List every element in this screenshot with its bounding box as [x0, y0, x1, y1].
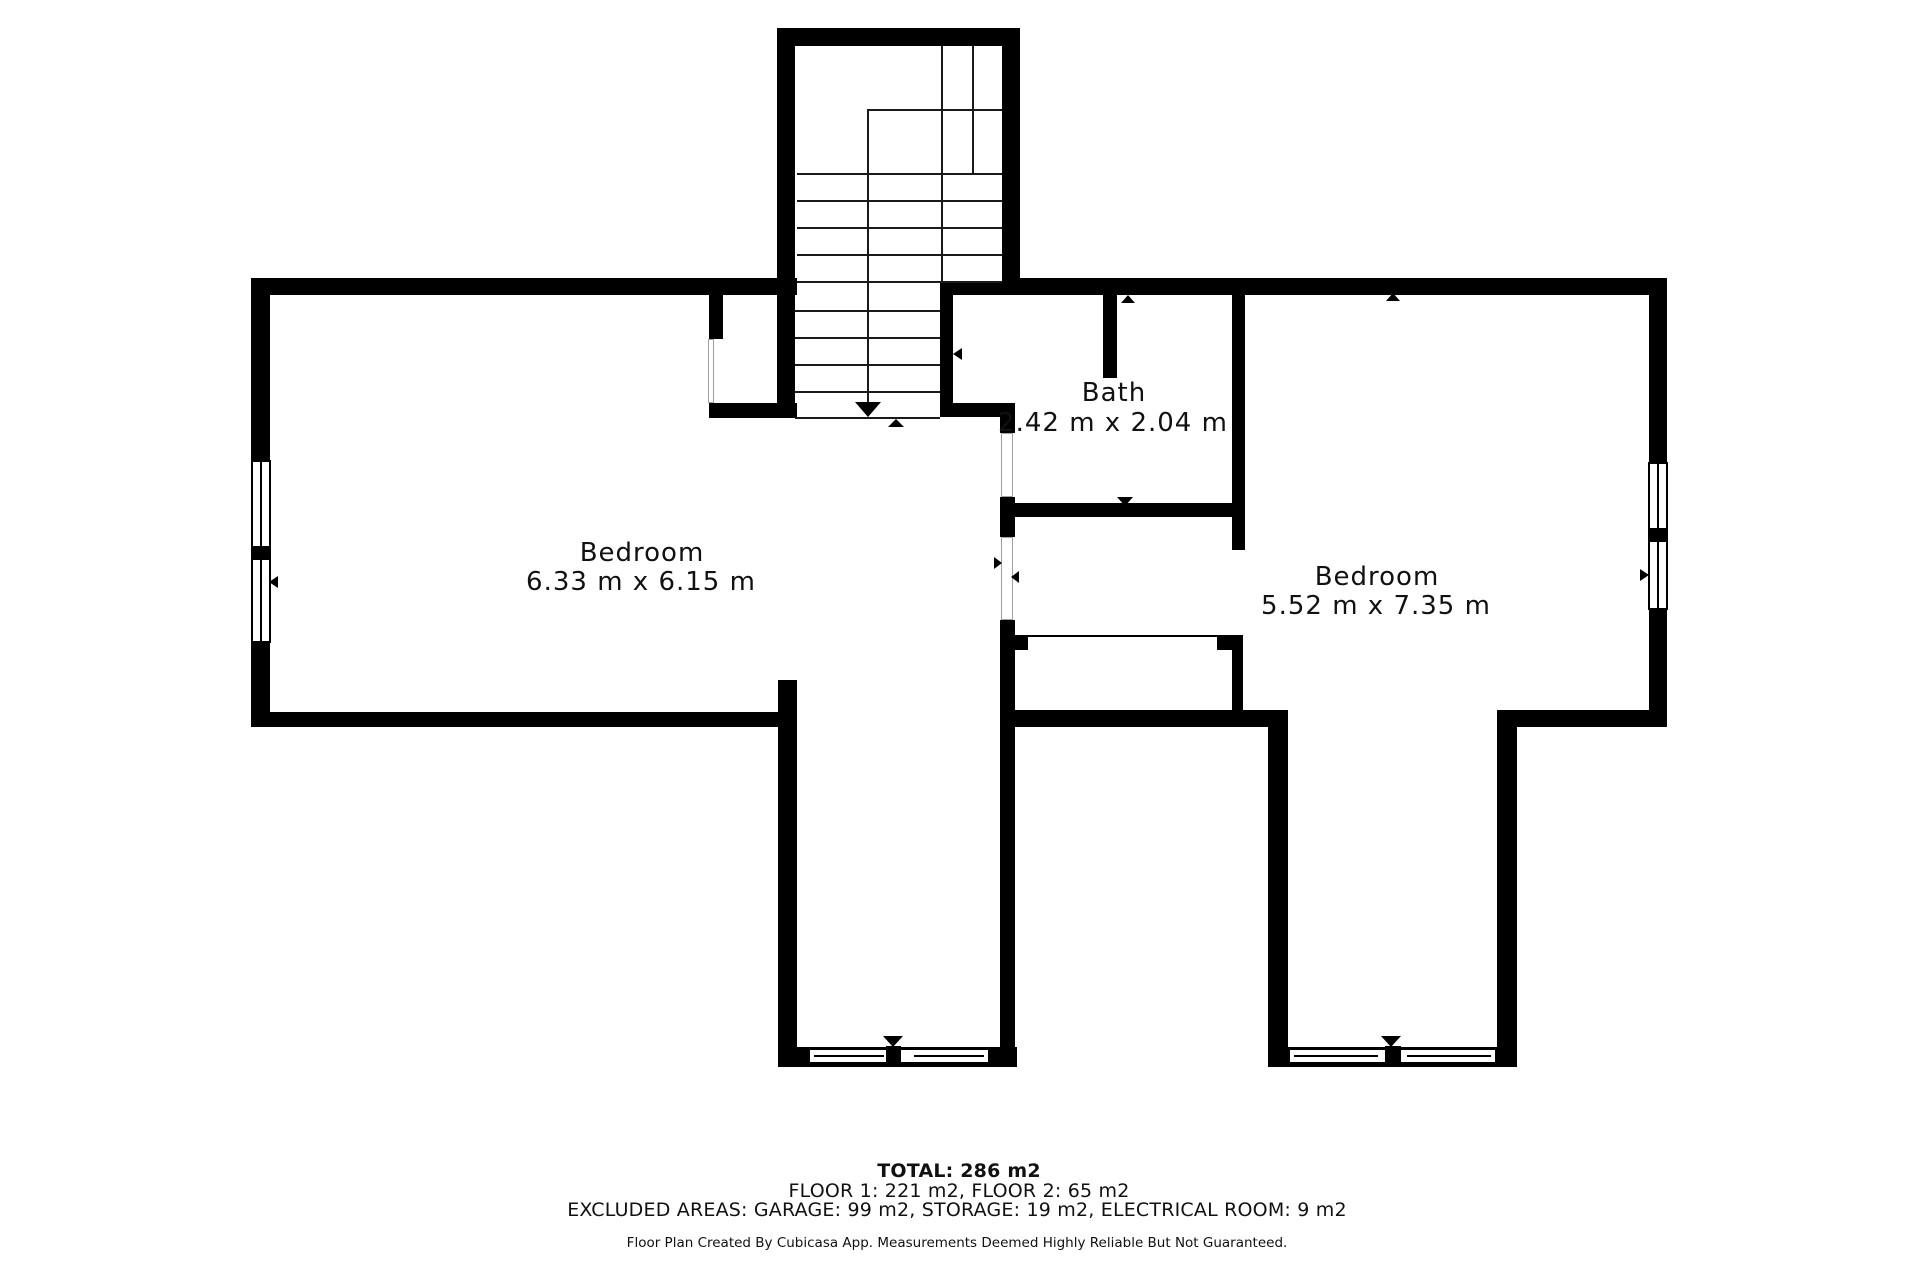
door-leaf	[1001, 433, 1013, 497]
stair-tread	[797, 200, 1002, 202]
room-label-bedroom-left: Bedroom	[580, 540, 705, 567]
wall	[1000, 635, 1028, 650]
door-swing-marker	[1381, 1036, 1401, 1047]
footer-excluded-areas: EXCLUDED AREAS: GARAGE: 99 m2, STORAGE: …	[567, 1201, 1347, 1221]
door-post	[886, 1046, 901, 1065]
window-divider	[1649, 528, 1667, 542]
wall	[1497, 710, 1517, 1067]
door-swing-marker	[1011, 571, 1019, 583]
door-panel-line	[814, 1055, 884, 1057]
wall	[1002, 278, 1667, 295]
door-swing-marker	[1386, 293, 1400, 301]
door-swing-marker	[953, 348, 962, 360]
door-swing-marker	[888, 419, 904, 427]
wall	[1268, 710, 1288, 1067]
stair-tread	[797, 227, 1002, 229]
stair-landing-line	[941, 46, 943, 283]
window	[1648, 462, 1668, 610]
wall	[778, 680, 797, 1067]
door-swing-marker	[1121, 295, 1135, 303]
door-panel-line	[1407, 1055, 1491, 1057]
wall	[1497, 710, 1667, 727]
stair-tread	[797, 254, 1002, 256]
wall	[940, 295, 953, 417]
wall	[251, 278, 270, 460]
door-post	[1385, 1046, 1401, 1065]
stair-tread	[797, 173, 1002, 175]
door-swing-marker	[883, 1036, 903, 1047]
wall	[777, 28, 1020, 46]
room-dims-bedroom-left: 6.33 m x 6.15 m	[526, 569, 756, 596]
room-label-bedroom-right: Bedroom	[1315, 564, 1440, 591]
wall	[709, 403, 797, 418]
wall	[1232, 295, 1245, 550]
room-dims-bedroom-right: 5.52 m x 7.35 m	[1261, 593, 1491, 620]
wall	[1002, 28, 1020, 295]
stair-run-line	[867, 109, 869, 403]
window-marker	[1640, 569, 1649, 581]
window	[251, 460, 271, 643]
closet-opening	[1028, 635, 1217, 650]
window-marker	[269, 576, 278, 588]
floor-plan: Bedroom 6.33 m x 6.15 m Bath 2.42 m x 2.…	[0, 0, 1920, 1280]
door-leaf	[708, 339, 714, 403]
wall	[777, 28, 795, 418]
wall	[251, 712, 797, 727]
stair-landing-line	[868, 109, 1002, 111]
wall	[1232, 637, 1243, 710]
window-divider	[252, 546, 270, 560]
stair-bottom-edge	[795, 417, 940, 419]
room-dims-bath: 2.42 m x 2.04 m	[998, 410, 1228, 437]
wall	[1649, 278, 1667, 462]
door-swing-marker	[994, 557, 1002, 569]
wall	[1103, 295, 1117, 378]
stair-direction-arrow	[855, 402, 881, 417]
room-label-bath: Bath	[1082, 380, 1146, 407]
wall	[1000, 710, 1288, 727]
wall	[709, 292, 723, 339]
stair-landing-line	[972, 46, 974, 173]
footer-disclaimer: Floor Plan Created By Cubicasa App. Meas…	[627, 1236, 1288, 1250]
footer-total: TOTAL: 286 m2	[877, 1162, 1041, 1182]
door-panel-line	[914, 1055, 984, 1057]
door-swing-marker	[1117, 497, 1133, 506]
door-panel-line	[1294, 1055, 1378, 1057]
stair-tread	[797, 281, 1002, 283]
wall	[1000, 620, 1015, 1047]
wall	[1000, 497, 1015, 537]
